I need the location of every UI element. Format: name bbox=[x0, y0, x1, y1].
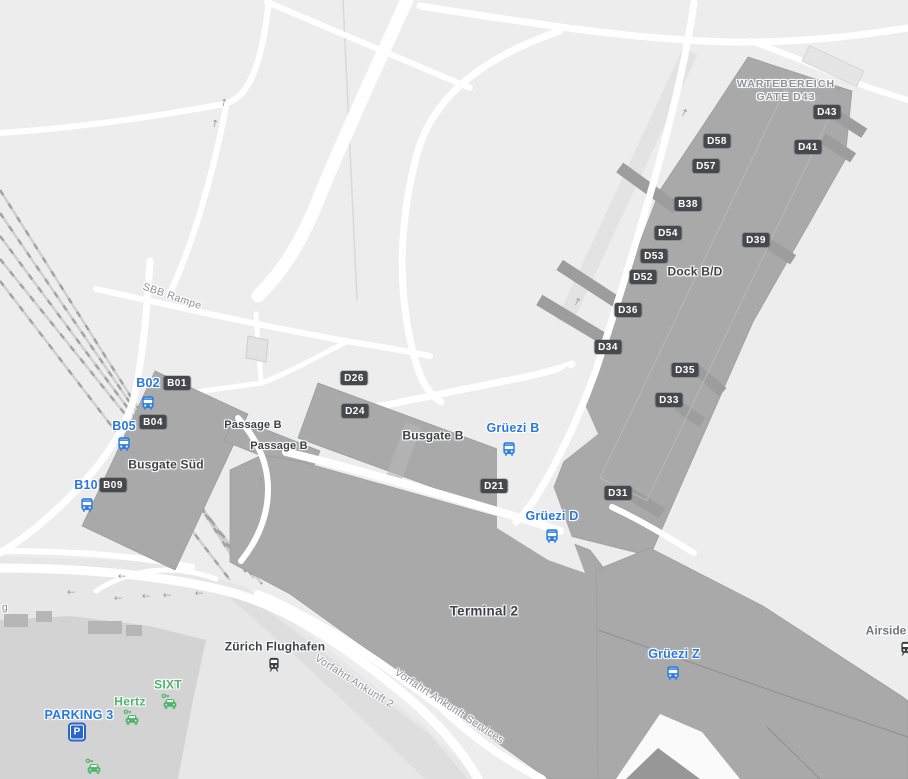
bus-icon[interactable] bbox=[501, 441, 518, 458]
gate-badge-d31[interactable]: D31 bbox=[605, 486, 632, 500]
gate-badge-d34[interactable]: D34 bbox=[595, 340, 622, 354]
gate-badge-d35[interactable]: D35 bbox=[672, 363, 699, 377]
terminal-2-label: Terminal 2 bbox=[450, 604, 519, 621]
gate-badge-b38[interactable]: B38 bbox=[675, 197, 702, 211]
gate-badge-d43[interactable]: D43 bbox=[814, 105, 841, 119]
bus-icon[interactable] bbox=[79, 497, 96, 514]
bus-icon[interactable] bbox=[665, 665, 682, 682]
wartebereich-gate-d43-label: WARTEBEREICH GATE D43 bbox=[737, 78, 835, 104]
gate-badge-d58[interactable]: D58 bbox=[704, 134, 731, 148]
car-rental-icon[interactable] bbox=[161, 693, 178, 710]
passage-b-label-1: Passage B bbox=[224, 419, 281, 433]
parking-icon[interactable]: P bbox=[70, 725, 84, 740]
train-station-icon[interactable] bbox=[898, 641, 908, 658]
car-rental-label-hertz[interactable]: Hertz bbox=[114, 695, 146, 710]
car-rental-icon[interactable] bbox=[85, 758, 102, 775]
parking-label[interactable]: PARKING 3 bbox=[45, 708, 114, 724]
gate-badge-d54[interactable]: D54 bbox=[655, 226, 682, 240]
bus-icon[interactable] bbox=[116, 436, 133, 453]
gate-badge-d57[interactable]: D57 bbox=[693, 159, 720, 173]
bus-stop-label-b10[interactable]: B10 bbox=[74, 478, 98, 494]
gate-badge-d33[interactable]: D33 bbox=[656, 393, 683, 407]
gate-badge-d36[interactable]: D36 bbox=[615, 303, 642, 317]
bus-icon[interactable] bbox=[544, 528, 561, 545]
dock-bd-label: Dock B/D bbox=[668, 265, 723, 280]
map-viewport[interactable]: → → → → → → → → → → → → WARTEBEREICH GAT… bbox=[0, 0, 908, 779]
car-rental-label-sixt[interactable]: SIXT bbox=[154, 678, 182, 693]
sbb-rampe-road-label: SBB Rampe bbox=[141, 281, 203, 313]
gate-badge-d41[interactable]: D41 bbox=[795, 140, 822, 154]
bus-stop-label-b05[interactable]: B05 bbox=[112, 419, 136, 435]
gate-badge-b01[interactable]: B01 bbox=[164, 376, 191, 390]
gate-badge-d39[interactable]: D39 bbox=[743, 233, 770, 247]
gate-badge-d24[interactable]: D24 bbox=[342, 404, 369, 418]
bus-icon[interactable] bbox=[140, 395, 157, 412]
vorfahrt-ankunft-services-road-label: Vorfahrt Ankunft Services bbox=[392, 667, 506, 748]
gate-badge-b09[interactable]: B09 bbox=[100, 478, 127, 492]
train-station-label-z-rich-flughafen[interactable]: Zürich Flughafen bbox=[225, 640, 326, 655]
bus-stop-label-b02[interactable]: B02 bbox=[136, 376, 160, 392]
train-station-icon[interactable] bbox=[266, 657, 283, 674]
car-rental-icon[interactable] bbox=[123, 709, 140, 726]
gate-badge-d52[interactable]: D52 bbox=[630, 270, 657, 284]
gate-badge-d53[interactable]: D53 bbox=[641, 249, 668, 263]
street-label-partial: g bbox=[2, 601, 8, 614]
gate-badge-b04[interactable]: B04 bbox=[140, 415, 167, 429]
bus-stop-label-gr-ezi-z[interactable]: Grüezi Z bbox=[648, 647, 700, 663]
busgate-b-label: Busgate B bbox=[402, 429, 463, 444]
airside-label: Airside bbox=[866, 624, 907, 639]
gate-badge-d26[interactable]: D26 bbox=[341, 371, 368, 385]
gate-badge-d21[interactable]: D21 bbox=[481, 479, 508, 493]
bus-stop-label-gr-ezi-d[interactable]: Grüezi D bbox=[526, 509, 579, 525]
passage-b-label-2: Passage B bbox=[250, 440, 307, 454]
bus-stop-label-gr-ezi-b[interactable]: Grüezi B bbox=[487, 421, 540, 437]
busgate-sued-label: Busgate Süd bbox=[128, 458, 204, 473]
vorfahrt-ankunft-2-road-label: Vorfahrt Ankunft 2 bbox=[312, 652, 396, 711]
map-labels-layer: WARTEBEREICH GATE D43Dock B/DBusgate BBu… bbox=[0, 0, 908, 779]
